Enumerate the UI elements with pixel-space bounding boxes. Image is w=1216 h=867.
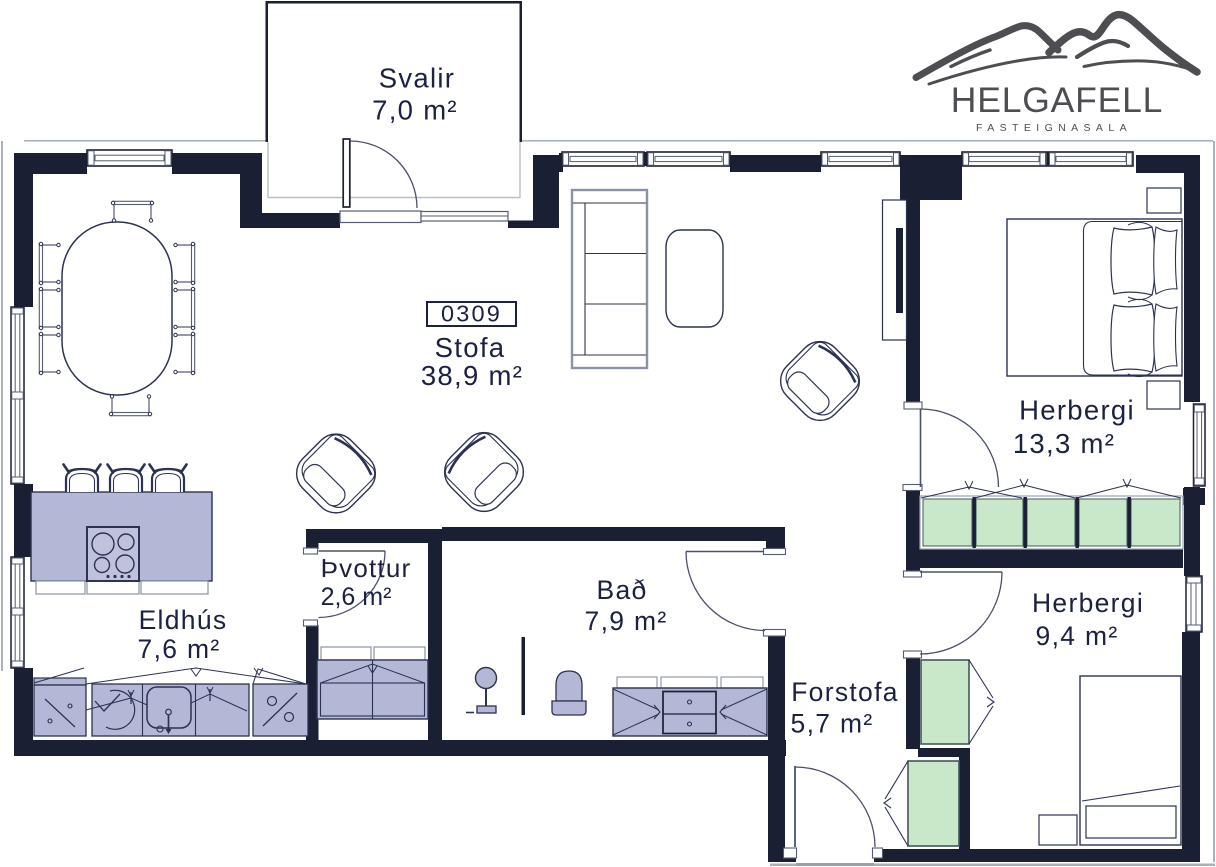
svg-text:7,6 m²: 7,6 m²	[138, 634, 221, 664]
svg-text:Forstofa: Forstofa	[791, 677, 899, 707]
svg-text:Bað: Bað	[596, 575, 647, 605]
svg-text:HELGAFELL: HELGAFELL	[951, 80, 1163, 120]
svg-text:5,7 m²: 5,7 m²	[791, 709, 874, 739]
svg-text:9,4 m²: 9,4 m²	[1036, 621, 1119, 651]
svg-text:Þvottur: Þvottur	[321, 553, 412, 583]
svg-text:7,0 m²: 7,0 m²	[372, 95, 458, 126]
svg-text:38,9 m²: 38,9 m²	[421, 360, 523, 391]
svg-text:Stofa: Stofa	[435, 332, 506, 363]
svg-text:FASTEIGNASALA: FASTEIGNASALA	[976, 122, 1132, 134]
svg-text:0309: 0309	[441, 301, 502, 327]
svg-text:13,3 m²: 13,3 m²	[1013, 428, 1115, 459]
svg-text:Herbergi: Herbergi	[1019, 395, 1135, 426]
svg-text:Eldhús: Eldhús	[139, 605, 228, 635]
svg-text:Herbergi: Herbergi	[1032, 588, 1144, 618]
svg-text:7,9 m²: 7,9 m²	[585, 606, 668, 636]
svg-text:Svalir: Svalir	[379, 63, 456, 94]
svg-text:2,6 m²: 2,6 m²	[321, 583, 392, 611]
